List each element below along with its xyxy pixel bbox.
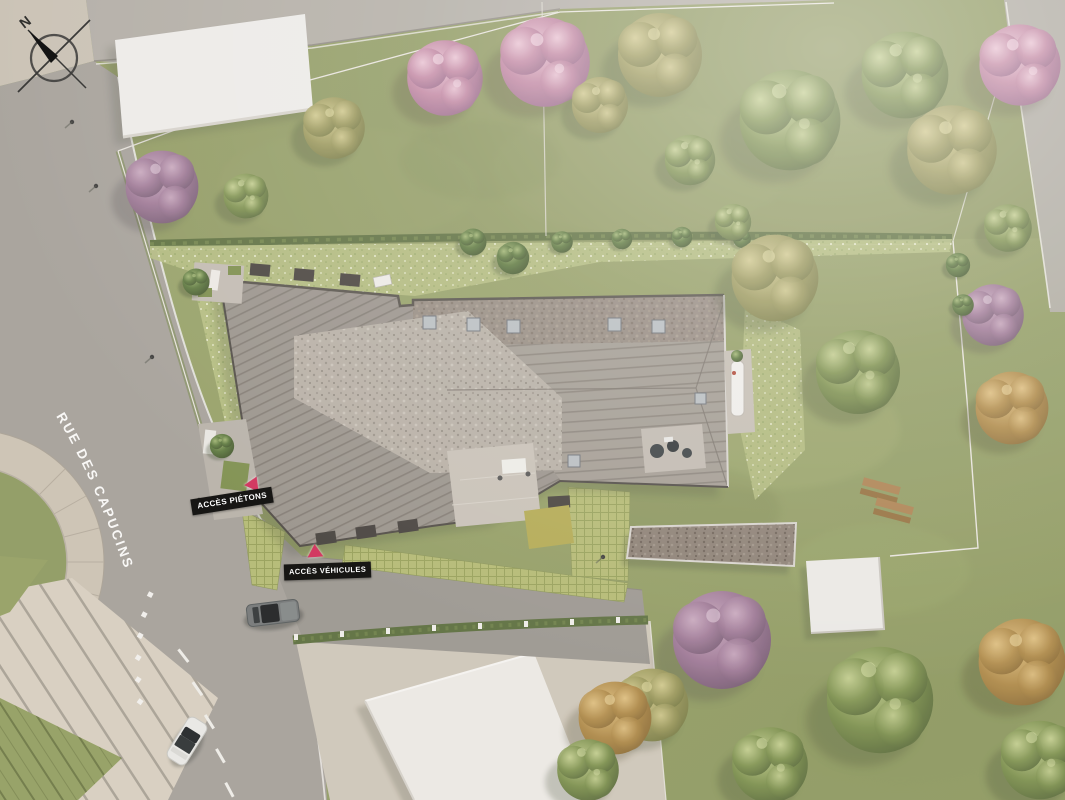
compass-north-icon: N <box>6 6 98 98</box>
vehicle-access-arrow-icon <box>307 543 324 557</box>
site-plan-canvas: RUE DES CAPUCINS <box>0 0 1065 800</box>
site-plan-rendering: RUE DES CAPUCINS N ACCÈS PIÉTONS ACCÈS V… <box>0 0 1065 800</box>
tone-wash <box>0 0 1065 800</box>
vehicle-access-label: ACCÈS VÉHICULES <box>284 561 372 580</box>
